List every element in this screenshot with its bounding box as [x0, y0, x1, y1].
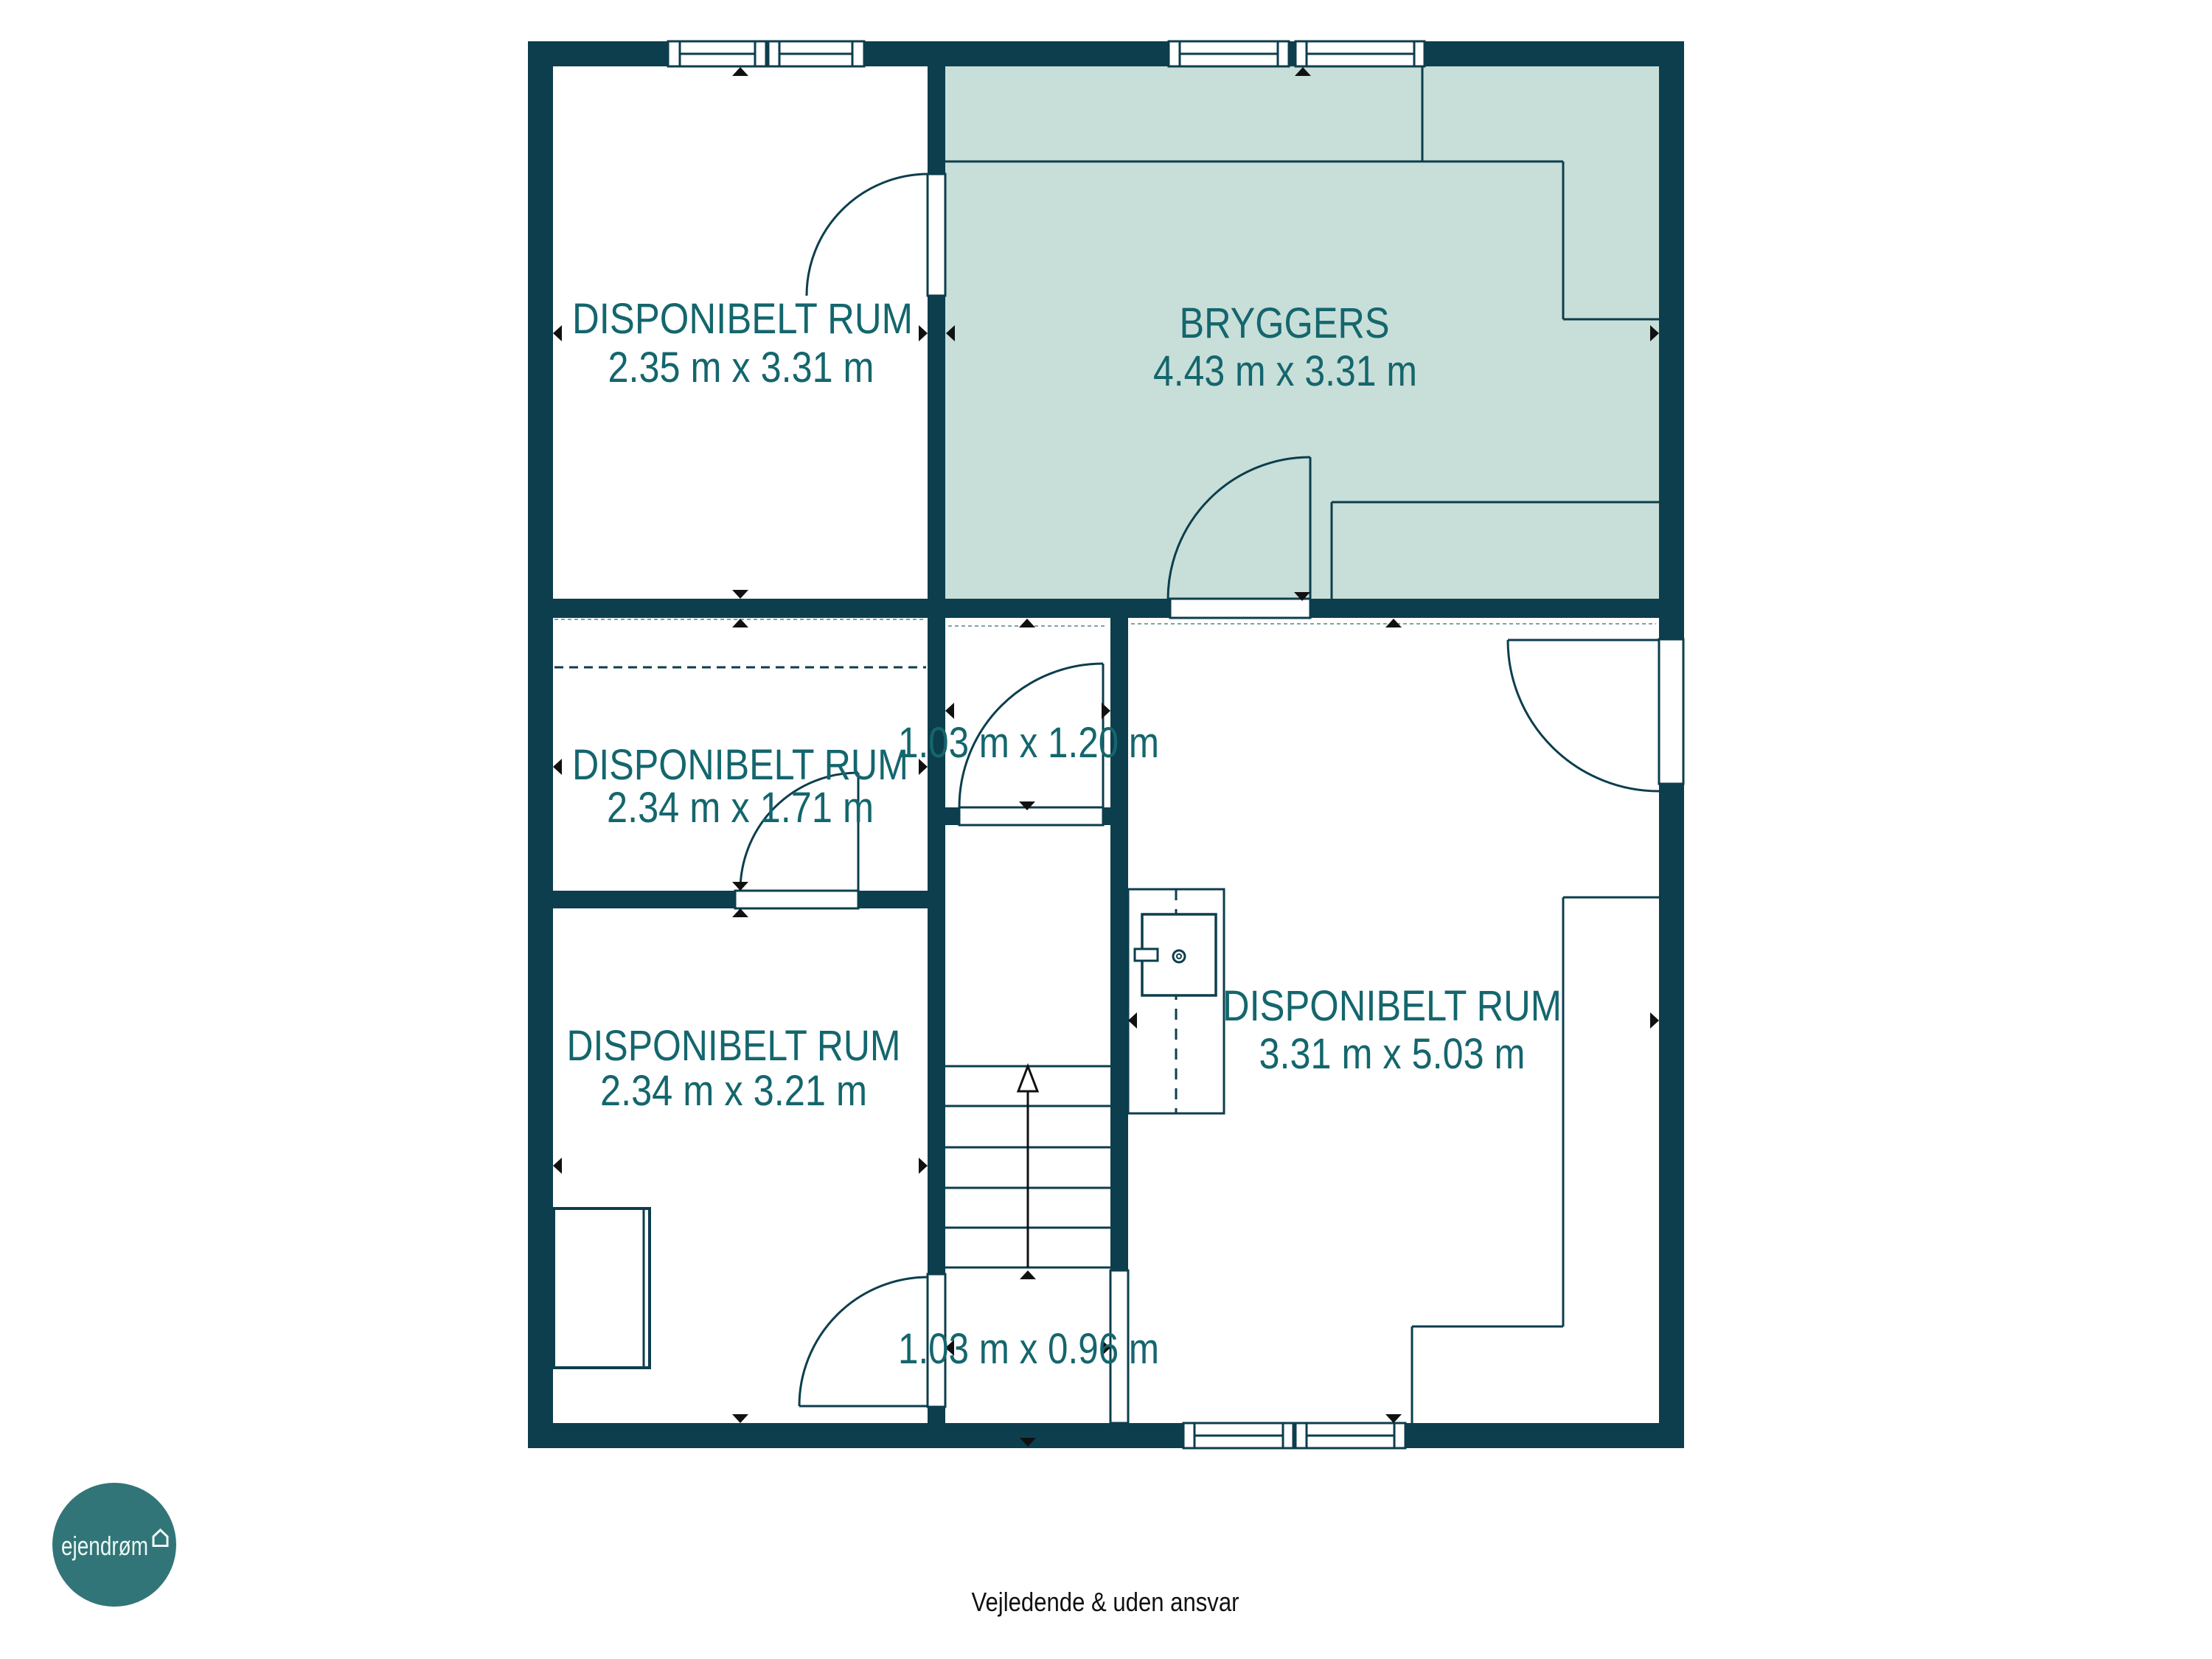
svg-text:DISPONIBELT RUM: DISPONIBELT RUM — [567, 1022, 901, 1070]
svg-text:2.35 m x 3.31 m: 2.35 m x 3.31 m — [608, 344, 874, 392]
svg-text:BRYGGERS: BRYGGERS — [1180, 299, 1390, 347]
svg-text:ejendrøm: ejendrøm — [61, 1531, 148, 1561]
svg-text:4.43 m x 3.31 m: 4.43 m x 3.31 m — [1153, 347, 1417, 395]
svg-text:2.34 m x 3.21 m: 2.34 m x 3.21 m — [600, 1067, 867, 1115]
svg-text:1.03 m x 0.96 m: 1.03 m x 0.96 m — [898, 1325, 1159, 1373]
svg-text:2.34 m x 1.71 m: 2.34 m x 1.71 m — [607, 784, 874, 832]
svg-text:Vejledende & uden ansvar: Vejledende & uden ansvar — [972, 1587, 1239, 1617]
svg-text:3.31 m x 5.03 m: 3.31 m x 5.03 m — [1259, 1030, 1526, 1078]
svg-text:DISPONIBELT RUM: DISPONIBELT RUM — [1222, 982, 1562, 1030]
svg-text:DISPONIBELT RUM: DISPONIBELT RUM — [572, 295, 913, 343]
svg-text:1.03 m x 1.20 m: 1.03 m x 1.20 m — [898, 719, 1159, 767]
svg-text:DISPONIBELT RUM: DISPONIBELT RUM — [572, 741, 908, 789]
